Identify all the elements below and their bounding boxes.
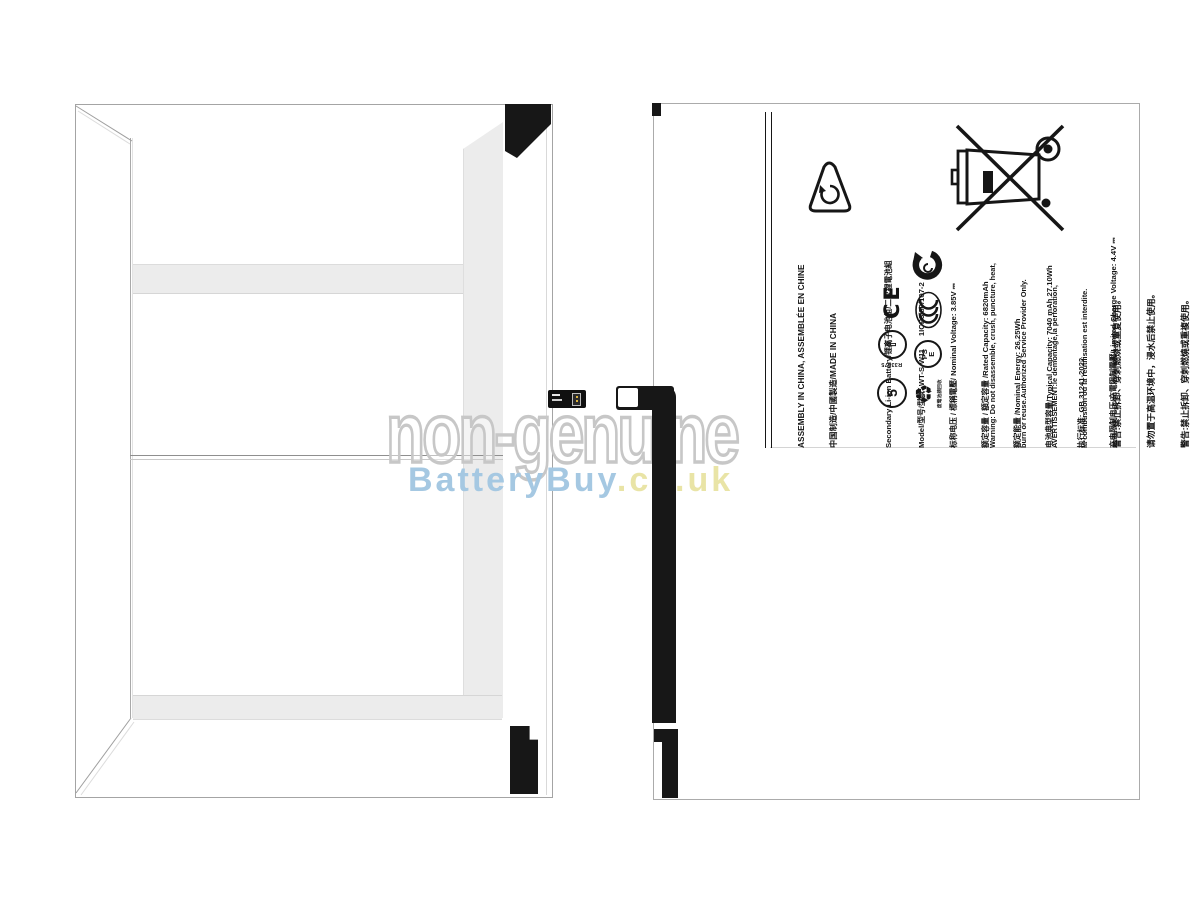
pcb-solder-dot [576, 396, 578, 398]
brand-watermark-name: BatteryBuy [408, 461, 617, 499]
battery-recycle-caption: 废電池請回收 [937, 379, 943, 408]
adhesive-band-top [133, 264, 463, 294]
warning-line-cn: 请勿置于高温环境中，浸水后禁止使用。 [1145, 230, 1159, 448]
battery-recycle-group: ♻ 废電池請回收 [913, 379, 943, 408]
assembly-line: ASSEMBLY IN CHINA, ASSEMBLÉE EN CHINE [797, 112, 808, 448]
pcb-markings [552, 399, 562, 401]
certification-icons: 5 R33475 ⇧ CE ♻ 废電池請回收 PS E [877, 250, 944, 408]
battery-recycle-icon: ♻ [913, 383, 936, 404]
ce-mark-icon: CE [880, 283, 904, 319]
ccc-mark-icon [915, 291, 942, 329]
battery-front-inner-line [130, 138, 131, 718]
battery-product-photo: ASSEMBLY IN CHINA, ASSEMBLÉE EN CHINE 中国… [0, 0, 1200, 900]
warning-line: la combustion ou la reutilisation est in… [1080, 230, 1090, 448]
battery-front-inner-line-highlight [132, 138, 133, 718]
pse-mark-icon: PS E [914, 340, 942, 368]
warning-line-cn: 警告:禁止拆卸、穿刺燃燒或重複使用。 [1179, 230, 1193, 448]
china-rohs-icon: 5 [877, 378, 907, 408]
triangle-certification-icon [807, 158, 853, 214]
warning-line-cn: 警告:禁止拆卸、穿刺燃烧或重复使用。 [1111, 230, 1125, 448]
flex-cable-ribbon [652, 386, 676, 723]
battery-spec-label: ASSEMBLY IN CHINA, ASSEMBLÉE EN CHINE 中国… [765, 112, 1080, 448]
flex-cable-pad [618, 388, 638, 407]
rohs-number: 5 [884, 389, 900, 397]
warning-line: AVERTISSEMENT:le demontage,la perforatio… [1050, 230, 1060, 448]
bsmi-number: R33475 [881, 361, 902, 367]
certification-row-1: 5 R33475 ⇧ CE [877, 250, 907, 408]
bsmi-recycle-icon: ⇧ [878, 330, 907, 359]
pcb-markings [552, 394, 560, 396]
circular-arrow-mark-icon [912, 250, 944, 280]
weee-crossed-bin-icon [949, 122, 1069, 234]
certification-row-2: ♻ 废電池請回收 PS E [912, 250, 944, 408]
pse-text: E [928, 352, 936, 357]
battery-back-corner-tab [652, 103, 661, 116]
pcb-solder-dot [576, 400, 578, 402]
adhesive-band-bottom [133, 695, 502, 720]
protection-pcb [548, 390, 586, 408]
flex-cable-tail [662, 741, 678, 798]
warning-line: burn or reuse.Authorized Service Provide… [1019, 230, 1029, 448]
label-double-rule [765, 112, 772, 448]
brand-watermark: BatteryBuy.co.uk [408, 461, 733, 500]
label-warnings: Warning: Do not disassemble, crush, punc… [968, 230, 1200, 448]
warning-line: Warning: Do not disassemble, crush, punc… [988, 230, 998, 448]
bsmi-arrow: ⇧ [884, 339, 900, 350]
bsmi-mark-group: R33475 ⇧ [878, 330, 907, 367]
